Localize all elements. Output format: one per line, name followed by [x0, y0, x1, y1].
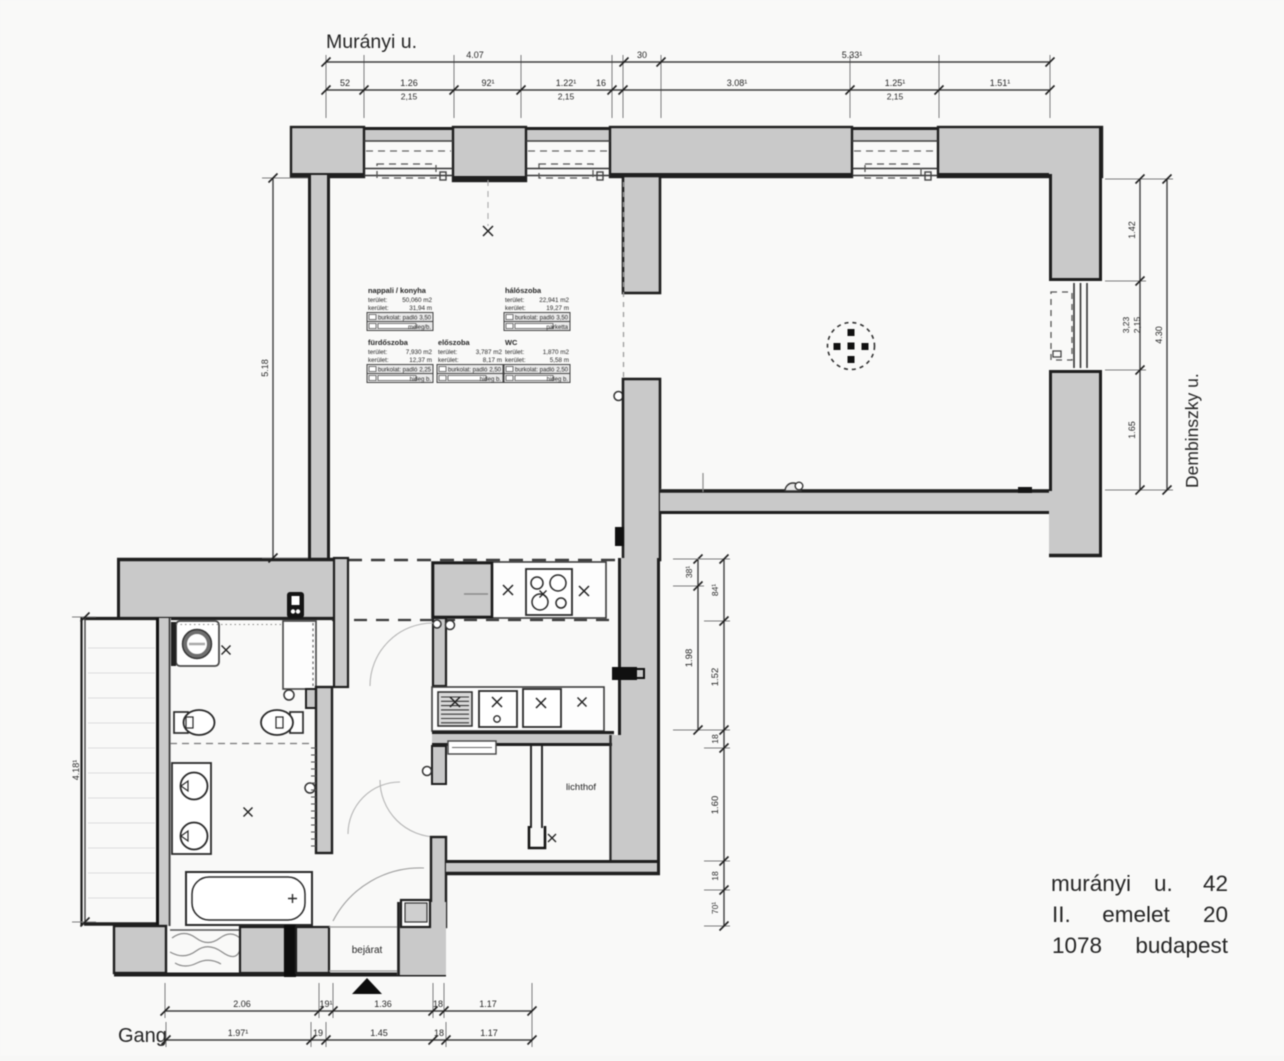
svg-text:burkolat: padló: burkolat: padló [515, 316, 555, 322]
svg-text:5,58 m: 5,58 m [550, 357, 569, 364]
svg-text:Gang: Gang [118, 1025, 167, 1047]
svg-text:1078: 1078 [1052, 933, 1102, 958]
svg-text:1.52: 1.52 [710, 668, 721, 687]
svg-text:19,27 m: 19,27 m [546, 305, 569, 312]
svg-text:1.97¹: 1.97¹ [228, 1028, 249, 1038]
svg-text:5.18: 5.18 [260, 359, 270, 377]
svg-text:terület:: terület: [368, 297, 388, 304]
svg-text:4.30: 4.30 [1154, 326, 1164, 344]
svg-text:5.33¹: 5.33¹ [842, 50, 863, 60]
svg-text:hideg b.: hideg b. [547, 377, 569, 383]
svg-text:2,25: 2,25 [419, 368, 431, 374]
svg-text:II.: II. [1052, 902, 1071, 927]
svg-text:kerület:: kerület: [505, 305, 526, 312]
svg-text:2,15: 2,15 [558, 92, 575, 102]
svg-text:1.42: 1.42 [1127, 221, 1137, 239]
svg-text:1.22¹: 1.22¹ [556, 78, 577, 88]
svg-text:1.17: 1.17 [479, 999, 497, 1009]
svg-text:52: 52 [340, 78, 350, 88]
svg-text:1.60: 1.60 [710, 796, 721, 815]
svg-text:WC: WC [505, 338, 518, 347]
svg-text:1.51¹: 1.51¹ [990, 78, 1011, 88]
svg-text:8,17 m: 8,17 m [483, 357, 502, 364]
svg-text:18: 18 [710, 734, 720, 744]
svg-text:budapest: budapest [1135, 933, 1228, 958]
svg-text:84¹: 84¹ [710, 584, 720, 596]
svg-text:2,50: 2,50 [489, 368, 501, 374]
svg-text:1.17: 1.17 [480, 1028, 498, 1038]
svg-text:3,50: 3,50 [419, 316, 431, 322]
svg-text:terület:: terület: [368, 349, 388, 356]
svg-text:4.07: 4.07 [466, 50, 484, 60]
svg-text:burkolat: padló: burkolat: padló [515, 368, 555, 374]
svg-text:1,870 m2: 1,870 m2 [543, 349, 570, 356]
svg-text:3.08¹: 3.08¹ [727, 78, 748, 88]
svg-text:terület:: terület: [438, 349, 458, 356]
svg-text:parketta: parketta [546, 325, 568, 331]
svg-text:50,060 m2: 50,060 m2 [402, 297, 432, 304]
svg-text:70¹: 70¹ [710, 902, 720, 914]
svg-text:2,15: 2,15 [887, 92, 904, 102]
svg-text:4.18¹: 4.18¹ [71, 760, 81, 781]
svg-text:12,37 m: 12,37 m [409, 357, 432, 364]
svg-text:murányi: murányi [1051, 871, 1131, 896]
svg-text:38¹: 38¹ [684, 566, 694, 578]
svg-text:hideg b.: hideg b. [480, 377, 502, 383]
svg-text:2.06: 2.06 [233, 999, 251, 1009]
svg-text:bejárat: bejárat [352, 945, 383, 956]
svg-text:30: 30 [637, 50, 647, 60]
svg-text:16: 16 [596, 78, 606, 88]
svg-text:3,50: 3,50 [556, 316, 568, 322]
svg-text:emelet: emelet [1102, 902, 1170, 927]
svg-text:42: 42 [1203, 871, 1228, 896]
svg-text:1.65: 1.65 [1127, 421, 1137, 439]
svg-text:kerület:: kerület: [505, 357, 526, 364]
svg-text:1.45: 1.45 [370, 1028, 388, 1038]
svg-text:2,15: 2,15 [401, 92, 418, 102]
svg-text:19: 19 [313, 1028, 323, 1038]
svg-text:18: 18 [434, 1028, 444, 1038]
svg-text:hideg b.: hideg b. [410, 377, 432, 383]
svg-text:1.26: 1.26 [400, 78, 418, 88]
svg-text:terület:: terület: [505, 297, 525, 304]
svg-text:meleg/b.: meleg/b. [408, 325, 431, 331]
svg-text:előszoba: előszoba [438, 338, 471, 347]
svg-text:Dembinszky u.: Dembinszky u. [1182, 373, 1202, 488]
svg-text:2,50: 2,50 [556, 368, 568, 374]
svg-text:18: 18 [433, 999, 443, 1009]
svg-text:nappali / konyha: nappali / konyha [368, 286, 427, 295]
svg-text:burkolat: padló: burkolat: padló [378, 368, 418, 374]
svg-text:hálószoba: hálószoba [505, 286, 542, 295]
svg-text:1.25¹: 1.25¹ [885, 78, 906, 88]
svg-text:92¹: 92¹ [481, 78, 494, 88]
svg-text:u.: u. [1154, 871, 1173, 896]
svg-text:1.98: 1.98 [684, 649, 695, 668]
svg-text:burkolat: padló: burkolat: padló [378, 316, 418, 322]
svg-text:31,94 m: 31,94 m [409, 305, 432, 312]
svg-text:fürdőszoba: fürdőszoba [368, 338, 409, 347]
svg-text:kerület:: kerület: [368, 357, 389, 364]
svg-text:19¹: 19¹ [319, 999, 332, 1009]
svg-text:terület:: terület: [505, 349, 525, 356]
svg-text:2,15: 2,15 [1132, 316, 1142, 333]
svg-text:3,787 m2: 3,787 m2 [476, 349, 503, 356]
svg-text:7,930 m2: 7,930 m2 [406, 349, 433, 356]
svg-text:kerület:: kerület: [438, 357, 459, 364]
svg-text:18: 18 [710, 871, 720, 881]
svg-text:1.36: 1.36 [374, 999, 392, 1009]
svg-text:lichthof: lichthof [566, 782, 596, 793]
svg-text:Murányi u.: Murányi u. [326, 31, 417, 53]
svg-text:20: 20 [1203, 902, 1228, 927]
svg-text:kerület:: kerület: [368, 305, 389, 312]
svg-text:3,23: 3,23 [1121, 316, 1131, 333]
svg-text:22,941 m2: 22,941 m2 [539, 297, 569, 304]
svg-text:burkolat: padló: burkolat: padló [448, 368, 488, 374]
